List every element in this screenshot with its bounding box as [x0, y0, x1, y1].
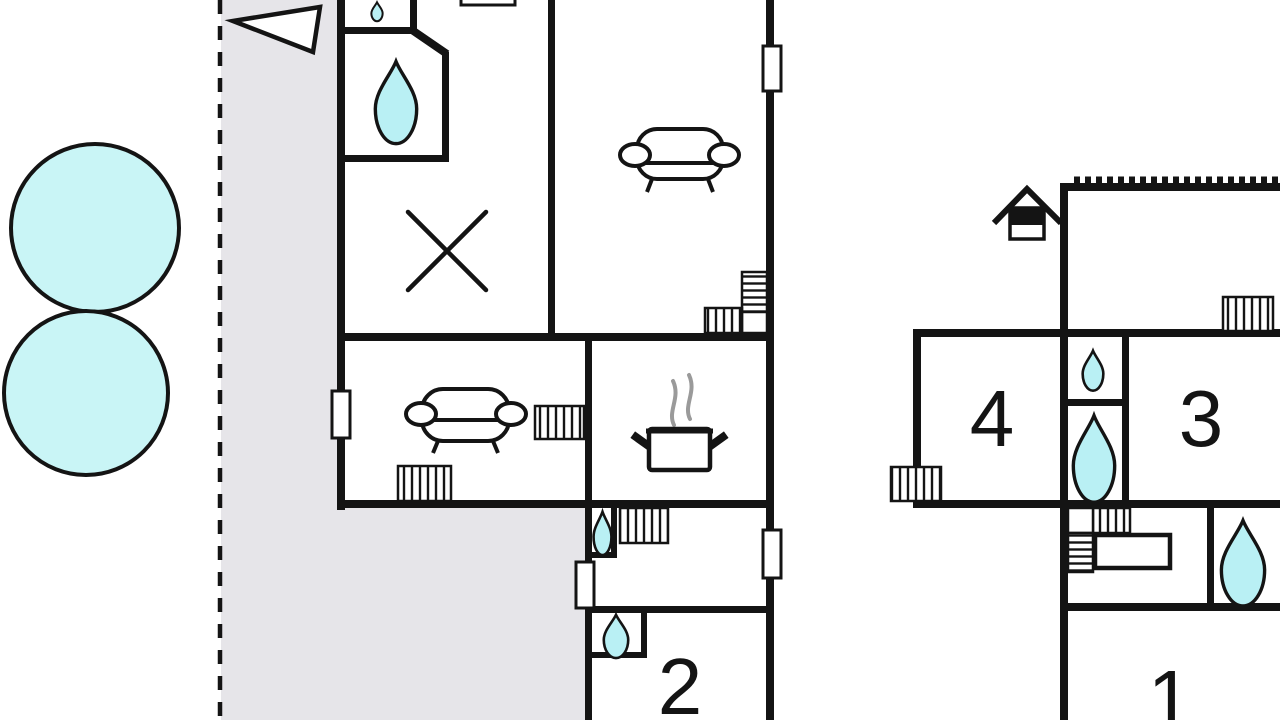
room-2-label: 2 — [658, 642, 703, 720]
radiator — [1223, 297, 1273, 331]
wall — [1207, 508, 1214, 603]
radiator — [620, 508, 668, 543]
water-drop-icon — [1083, 351, 1104, 391]
wall-chamfer — [412, 30, 447, 54]
wall — [548, 0, 555, 340]
room-4-label: 4 — [970, 374, 1015, 463]
wall — [641, 613, 647, 656]
staircase — [705, 272, 767, 333]
water-drop-icon — [371, 2, 382, 21]
water-drop-icon — [594, 512, 612, 555]
wall — [1068, 399, 1122, 406]
floor-plan-page: 2 — [0, 0, 1280, 720]
window — [763, 530, 781, 578]
wall — [442, 52, 449, 162]
radiator — [535, 406, 584, 439]
pool — [4, 144, 179, 475]
room-1-label: 1 — [1148, 654, 1193, 720]
wall — [337, 155, 449, 162]
water-drop-icon — [1073, 416, 1114, 503]
water-drop-icon — [375, 61, 416, 143]
cooking-pot-icon — [636, 375, 723, 470]
radiator — [398, 466, 451, 501]
floor-plan-svg: 2 — [0, 0, 1280, 720]
wall — [1060, 183, 1280, 191]
window — [763, 46, 781, 91]
counter — [1095, 535, 1170, 568]
house-icon — [994, 189, 1061, 239]
right-building: 4 3 1 — [891, 180, 1280, 720]
sofa-icon — [406, 389, 526, 453]
wall — [585, 340, 592, 508]
wall — [585, 508, 592, 720]
steam-icon — [688, 375, 692, 419]
wall — [1060, 183, 1068, 720]
radiator — [891, 467, 941, 501]
window — [576, 562, 594, 608]
wall — [585, 606, 774, 613]
wall — [337, 27, 417, 34]
water-drop-icon — [1221, 521, 1264, 606]
room-3-label: 3 — [1179, 374, 1224, 463]
water-drop-icon — [604, 615, 628, 658]
sofa-icon — [620, 129, 739, 192]
steam-icon — [672, 381, 676, 425]
wall — [1122, 337, 1129, 500]
window — [461, 0, 515, 5]
window — [332, 391, 350, 438]
x-mark-icon — [408, 212, 486, 290]
